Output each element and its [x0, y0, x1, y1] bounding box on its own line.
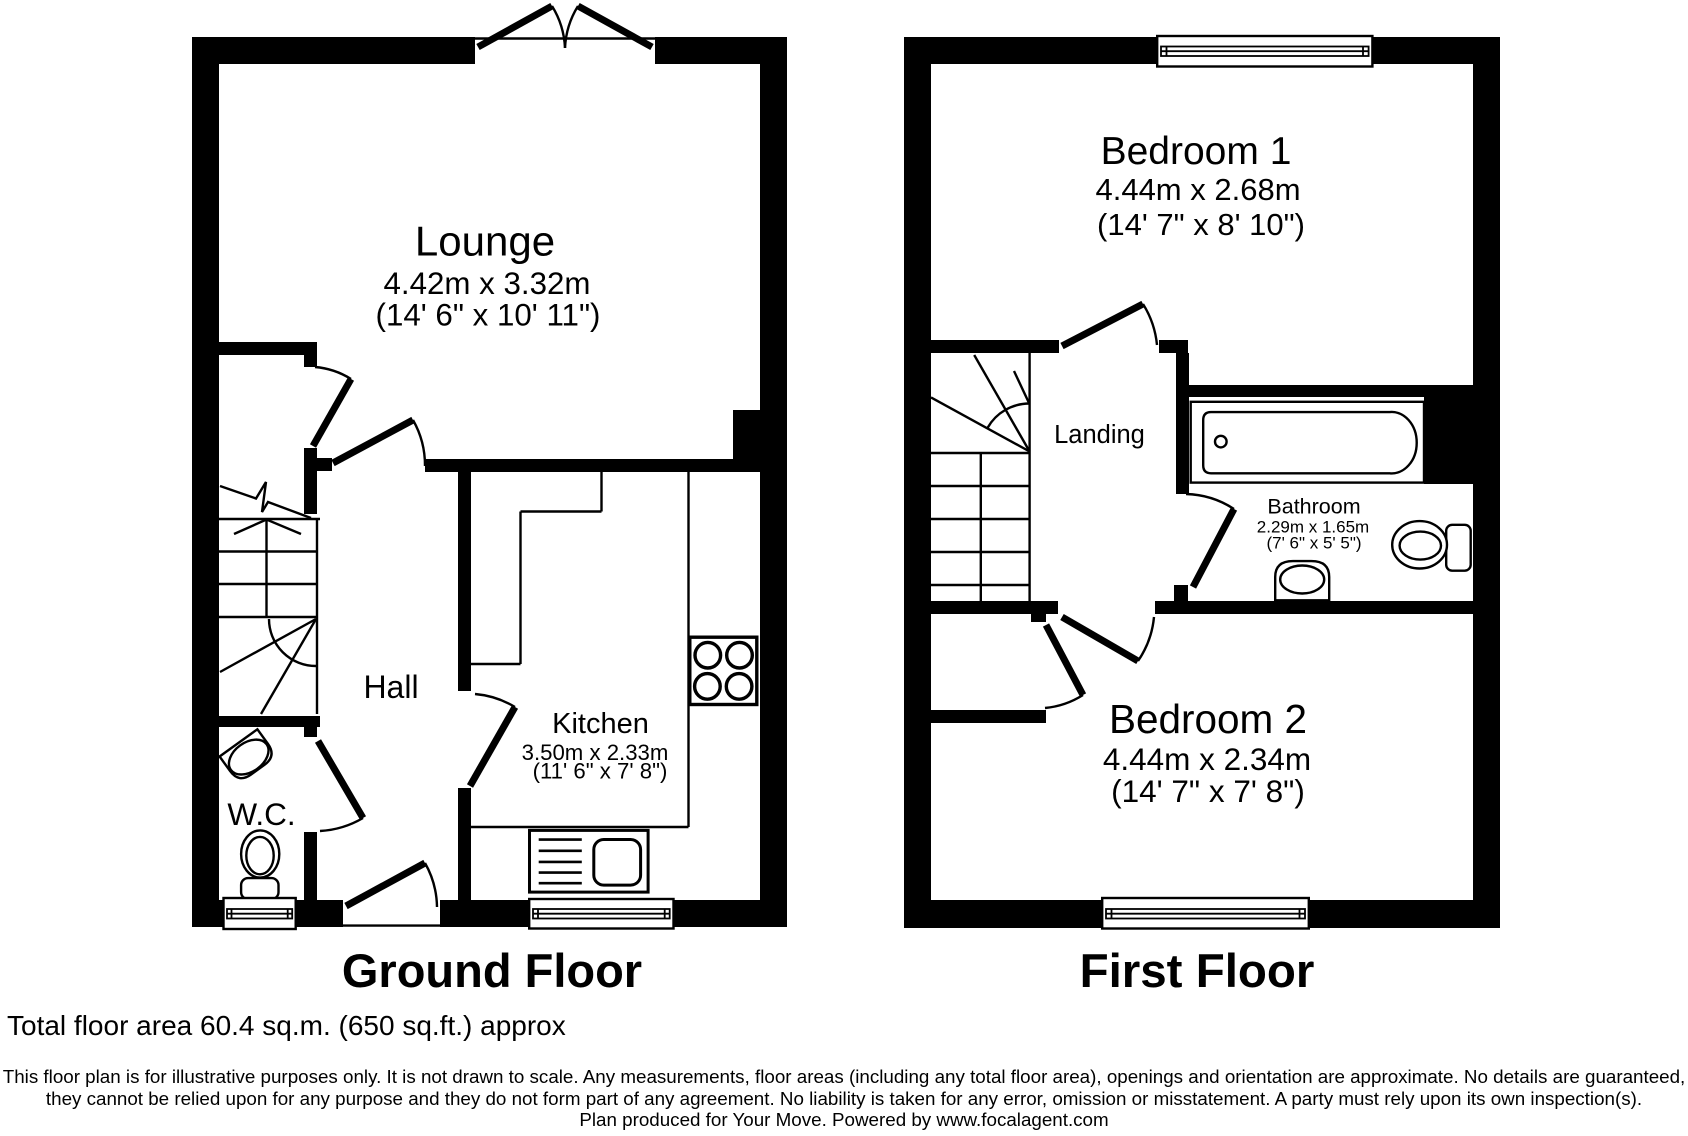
svg-text:Bedroom 2: Bedroom 2 [1109, 696, 1307, 742]
svg-text:(14' 7" x 8' 10"): (14' 7" x 8' 10") [1097, 207, 1305, 242]
svg-text:4.42m x 3.32m: 4.42m x 3.32m [383, 266, 590, 301]
svg-text:4.44m x 2.34m: 4.44m x 2.34m [1103, 741, 1311, 777]
svg-text:Lounge: Lounge [415, 218, 555, 265]
svg-text:4.44m x 2.68m: 4.44m x 2.68m [1095, 172, 1300, 207]
svg-text:Total floor area 60.4 sq.m. (6: Total floor area 60.4 sq.m. (650 sq.ft.)… [7, 1010, 566, 1041]
svg-text:Kitchen: Kitchen [552, 708, 649, 740]
svg-text:Hall: Hall [363, 669, 418, 705]
svg-text:(7' 6" x 5' 5"): (7' 6" x 5' 5") [1266, 534, 1361, 553]
svg-text:(11' 6" x 7' 8"): (11' 6" x 7' 8") [533, 759, 668, 784]
svg-text:This floor plan is for illustr: This floor plan is for illustrative purp… [3, 1066, 1686, 1087]
svg-text:(14' 6" x 10' 11"): (14' 6" x 10' 11") [376, 298, 601, 333]
svg-text:First Floor: First Floor [1080, 945, 1315, 998]
svg-text:Bathroom: Bathroom [1267, 495, 1360, 519]
svg-text:Ground Floor: Ground Floor [342, 944, 642, 997]
svg-text:(14' 7" x 7' 8"): (14' 7" x 7' 8") [1111, 773, 1305, 809]
svg-text:Bedroom 1: Bedroom 1 [1101, 130, 1292, 173]
svg-text:they cannot be relied upon for: they cannot be relied upon for any purpo… [46, 1088, 1642, 1109]
svg-text:Plan produced for Your Move. P: Plan produced for Your Move. Powered by … [579, 1109, 1108, 1130]
svg-text:Landing: Landing [1054, 421, 1145, 449]
svg-text:W.C.: W.C. [227, 796, 295, 832]
